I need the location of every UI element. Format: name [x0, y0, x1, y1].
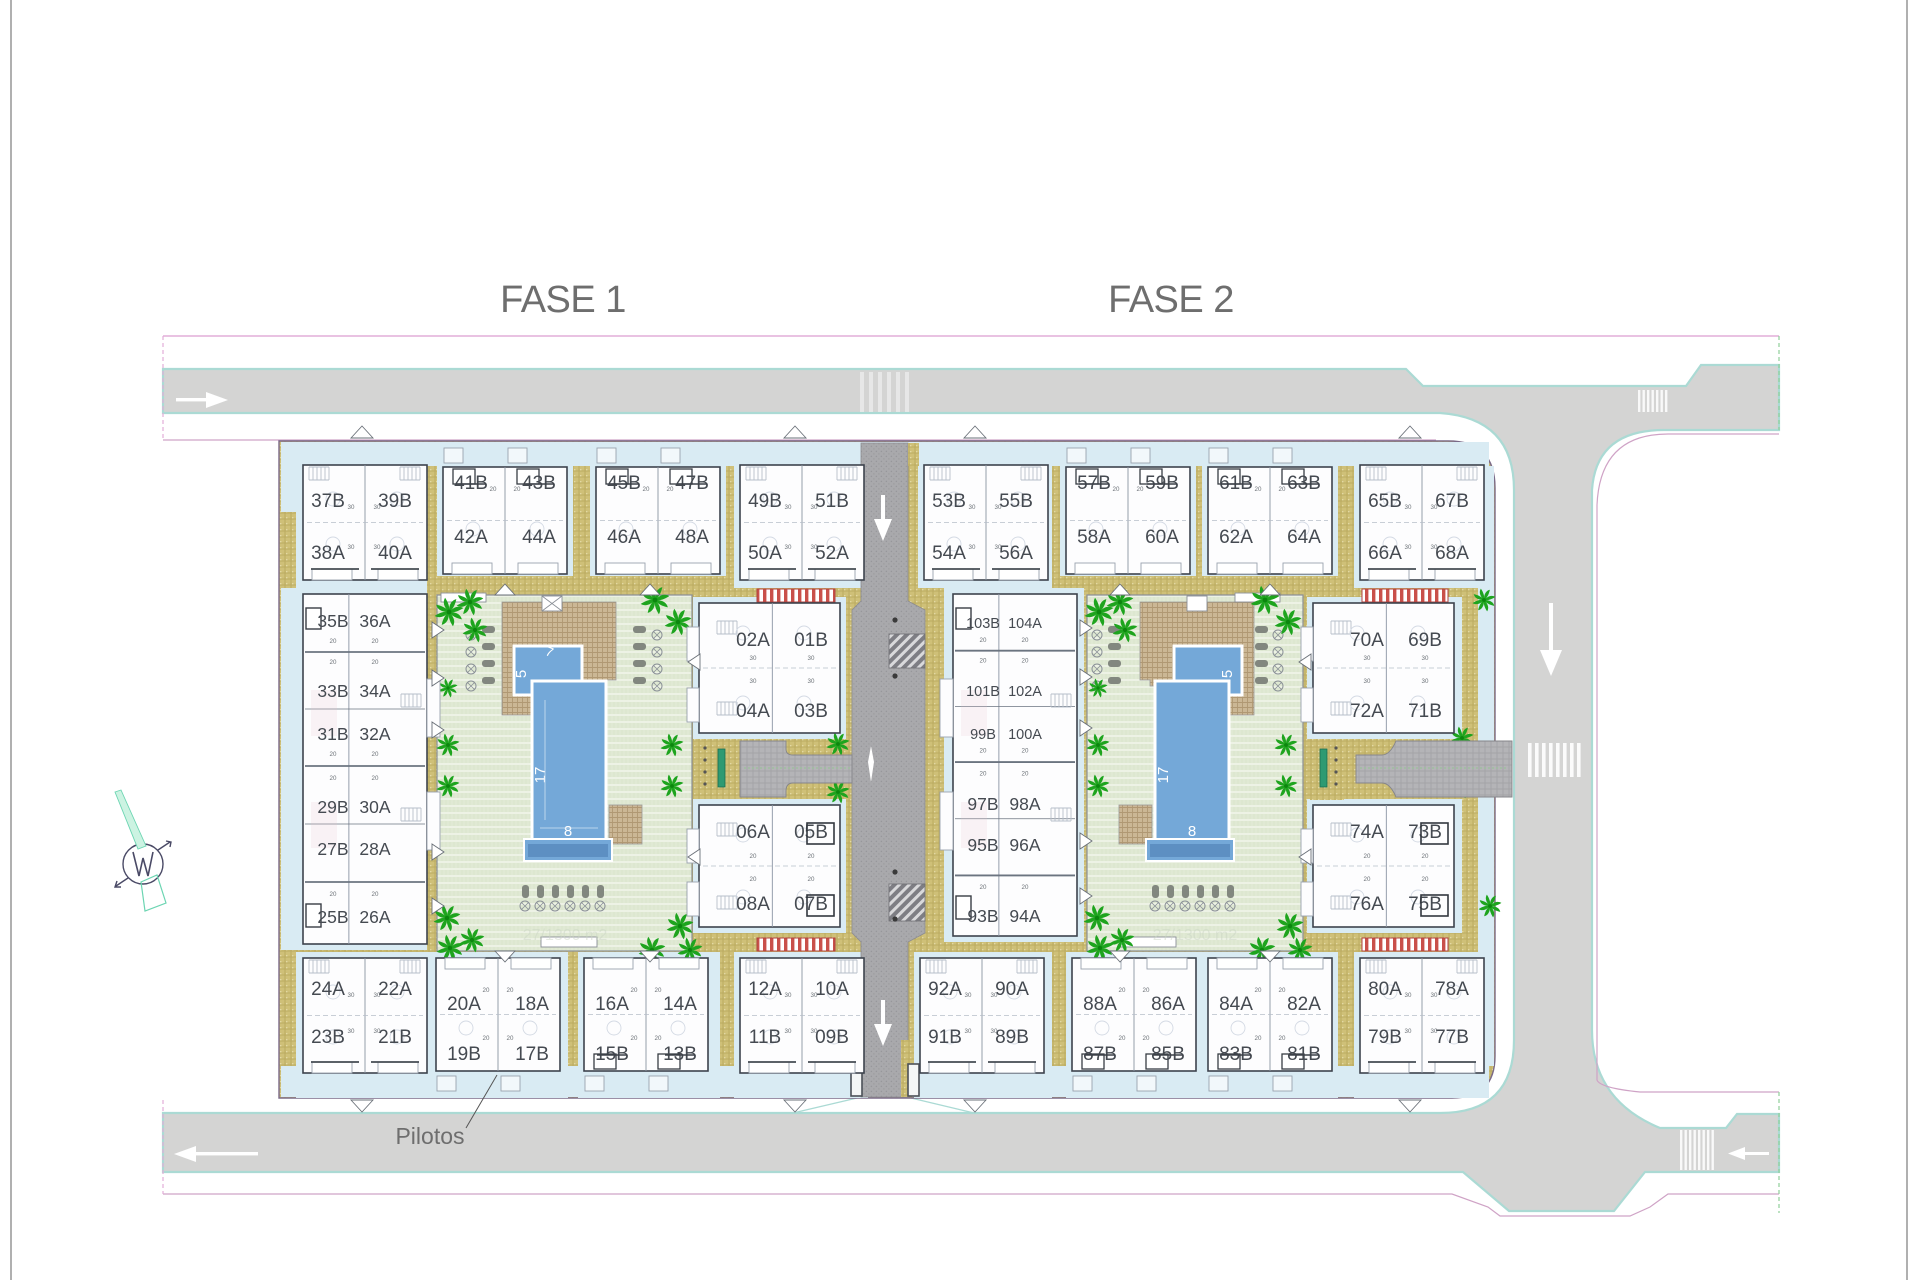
svg-text:103B: 103B	[966, 616, 1000, 632]
svg-text:98A: 98A	[1009, 794, 1040, 814]
svg-text:30: 30	[995, 504, 1002, 511]
svg-text:30: 30	[1405, 1028, 1412, 1035]
svg-text:60A: 60A	[1145, 527, 1179, 548]
svg-text:20: 20	[655, 987, 662, 994]
svg-text:30A: 30A	[359, 797, 390, 817]
svg-text:30: 30	[1431, 544, 1438, 551]
svg-text:66A: 66A	[1368, 543, 1402, 564]
svg-text:20: 20	[1119, 1035, 1126, 1042]
svg-text:72A: 72A	[1350, 701, 1384, 722]
svg-text:77B: 77B	[1435, 1027, 1469, 1048]
svg-text:84A: 84A	[1219, 994, 1253, 1015]
svg-text:30: 30	[808, 655, 815, 662]
svg-text:48A: 48A	[675, 527, 709, 548]
svg-text:86A: 86A	[1151, 994, 1185, 1015]
svg-text:10A: 10A	[815, 979, 849, 1000]
svg-text:20: 20	[1143, 987, 1150, 994]
svg-text:76A: 76A	[1350, 894, 1384, 915]
svg-text:20: 20	[631, 1035, 638, 1042]
svg-text:32A: 32A	[359, 724, 390, 744]
svg-text:20: 20	[980, 747, 987, 754]
svg-text:20: 20	[507, 1035, 514, 1042]
svg-text:20: 20	[514, 486, 521, 493]
svg-text:20: 20	[483, 1035, 490, 1042]
svg-text:20: 20	[507, 987, 514, 994]
svg-text:71B: 71B	[1408, 701, 1442, 722]
svg-text:64A: 64A	[1287, 527, 1321, 548]
svg-text:20: 20	[1022, 884, 1029, 891]
svg-text:20: 20	[1255, 1035, 1262, 1042]
svg-text:30: 30	[991, 992, 998, 999]
svg-text:20: 20	[330, 638, 337, 645]
svg-text:55B: 55B	[999, 491, 1033, 512]
svg-text:20: 20	[330, 775, 337, 782]
svg-text:20: 20	[1022, 657, 1029, 664]
svg-text:73B: 73B	[1408, 822, 1442, 843]
svg-text:30: 30	[965, 992, 972, 999]
svg-text:20: 20	[1422, 853, 1429, 860]
svg-text:20: 20	[980, 637, 987, 644]
svg-text:68A: 68A	[1435, 543, 1469, 564]
svg-text:30: 30	[374, 1028, 381, 1035]
svg-text:30: 30	[785, 1028, 792, 1035]
svg-text:20: 20	[808, 876, 815, 883]
svg-text:20: 20	[980, 657, 987, 664]
svg-text:37B: 37B	[311, 491, 345, 512]
svg-text:20: 20	[750, 853, 757, 860]
svg-text:07B: 07B	[794, 894, 828, 915]
svg-text:96A: 96A	[1009, 835, 1040, 855]
svg-text:30: 30	[969, 544, 976, 551]
svg-text:79B: 79B	[1368, 1027, 1402, 1048]
svg-text:70A: 70A	[1350, 630, 1384, 651]
svg-text:93B: 93B	[967, 906, 998, 926]
svg-text:20: 20	[490, 486, 497, 493]
svg-text:30: 30	[374, 992, 381, 999]
svg-text:20: 20	[1119, 987, 1126, 994]
svg-text:91B: 91B	[928, 1027, 962, 1048]
svg-text:33B: 33B	[317, 681, 348, 701]
svg-text:56A: 56A	[999, 543, 1033, 564]
svg-text:30: 30	[374, 544, 381, 551]
svg-text:51B: 51B	[815, 491, 849, 512]
svg-text:80A: 80A	[1368, 979, 1402, 1000]
svg-text:30: 30	[1431, 1028, 1438, 1035]
svg-text:16A: 16A	[595, 994, 629, 1015]
svg-text:42A: 42A	[454, 527, 488, 548]
svg-text:30: 30	[348, 1028, 355, 1035]
svg-text:30: 30	[750, 678, 757, 685]
svg-text:20: 20	[980, 884, 987, 891]
svg-text:30: 30	[348, 992, 355, 999]
svg-text:FASE 1: FASE 1	[500, 279, 626, 321]
svg-text:12A: 12A	[748, 979, 782, 1000]
svg-text:20: 20	[1255, 486, 1262, 493]
svg-text:20: 20	[631, 987, 638, 994]
svg-text:30: 30	[1405, 544, 1412, 551]
svg-text:30: 30	[811, 1028, 818, 1035]
svg-text:30: 30	[785, 504, 792, 511]
svg-text:30: 30	[991, 1028, 998, 1035]
svg-text:30: 30	[1431, 992, 1438, 999]
svg-text:08A: 08A	[736, 894, 770, 915]
svg-text:30: 30	[969, 504, 976, 511]
svg-text:20: 20	[372, 891, 379, 898]
svg-text:100A: 100A	[1008, 727, 1042, 743]
svg-text:30: 30	[1405, 504, 1412, 511]
svg-text:14A: 14A	[663, 994, 697, 1015]
svg-text:20: 20	[372, 751, 379, 758]
svg-text:17: 17	[532, 767, 549, 784]
svg-text:17B: 17B	[515, 1044, 549, 1065]
svg-text:20: 20	[643, 486, 650, 493]
svg-text:30: 30	[1422, 655, 1429, 662]
svg-text:67B: 67B	[1435, 491, 1469, 512]
svg-text:30: 30	[750, 655, 757, 662]
svg-text:20: 20	[1022, 637, 1029, 644]
svg-text:89B: 89B	[995, 1027, 1029, 1048]
svg-text:20: 20	[330, 751, 337, 758]
svg-text:30: 30	[785, 992, 792, 999]
svg-text:30: 30	[808, 678, 815, 685]
svg-text:30: 30	[785, 544, 792, 551]
svg-text:53B: 53B	[932, 491, 966, 512]
svg-text:20: 20	[1422, 876, 1429, 883]
svg-text:20: 20	[372, 775, 379, 782]
svg-text:38A: 38A	[311, 543, 345, 564]
svg-text:30: 30	[1364, 678, 1371, 685]
svg-text:101B: 101B	[966, 684, 1000, 700]
svg-text:78A: 78A	[1435, 979, 1469, 1000]
svg-text:20: 20	[1279, 1035, 1286, 1042]
svg-text:50A: 50A	[748, 543, 782, 564]
svg-text:74A: 74A	[1350, 822, 1384, 843]
svg-text:95B: 95B	[967, 835, 998, 855]
svg-text:99B: 99B	[970, 727, 996, 743]
svg-text:27/1300 m2: 27/1300 m2	[523, 927, 608, 944]
svg-text:20: 20	[1255, 987, 1262, 994]
svg-text:20A: 20A	[447, 994, 481, 1015]
svg-text:27B: 27B	[317, 839, 348, 859]
svg-text:20: 20	[750, 876, 757, 883]
svg-text:24A: 24A	[311, 979, 345, 1000]
svg-text:21B: 21B	[378, 1027, 412, 1048]
svg-text:30: 30	[374, 504, 381, 511]
svg-text:31B: 31B	[317, 724, 348, 744]
svg-text:22A: 22A	[378, 979, 412, 1000]
svg-text:30: 30	[1364, 655, 1371, 662]
svg-text:92A: 92A	[928, 979, 962, 1000]
svg-text:09B: 09B	[815, 1027, 849, 1048]
svg-text:19B: 19B	[447, 1044, 481, 1065]
svg-text:44A: 44A	[522, 527, 556, 548]
svg-text:18A: 18A	[515, 994, 549, 1015]
svg-text:69B: 69B	[1408, 630, 1442, 651]
svg-text:06A: 06A	[736, 822, 770, 843]
svg-text:40A: 40A	[378, 543, 412, 564]
svg-text:20: 20	[372, 638, 379, 645]
svg-text:20: 20	[1279, 987, 1286, 994]
svg-text:82A: 82A	[1287, 994, 1321, 1015]
svg-text:Pilotos: Pilotos	[395, 1123, 464, 1149]
svg-text:62A: 62A	[1219, 527, 1253, 548]
svg-text:20: 20	[655, 1035, 662, 1042]
svg-text:30: 30	[811, 544, 818, 551]
svg-text:23B: 23B	[311, 1027, 345, 1048]
svg-text:20: 20	[1113, 486, 1120, 493]
svg-text:54A: 54A	[932, 543, 966, 564]
svg-text:17: 17	[1155, 767, 1172, 784]
svg-text:104A: 104A	[1008, 616, 1042, 632]
svg-text:04A: 04A	[736, 701, 770, 722]
svg-text:03B: 03B	[794, 701, 828, 722]
svg-text:102A: 102A	[1008, 684, 1042, 700]
svg-text:5: 5	[1219, 670, 1236, 678]
svg-text:5: 5	[513, 670, 530, 678]
svg-text:29B: 29B	[317, 797, 348, 817]
svg-text:20: 20	[1137, 486, 1144, 493]
svg-text:20: 20	[808, 853, 815, 860]
svg-text:26A: 26A	[359, 907, 390, 927]
svg-text:36A: 36A	[359, 611, 390, 631]
svg-text:30: 30	[348, 544, 355, 551]
svg-text:20: 20	[1364, 853, 1371, 860]
svg-text:97B: 97B	[967, 794, 998, 814]
svg-text:30: 30	[348, 504, 355, 511]
svg-text:90A: 90A	[995, 979, 1029, 1000]
svg-text:30: 30	[1422, 678, 1429, 685]
svg-text:27/1300 m2: 27/1300 m2	[1153, 927, 1238, 944]
svg-text:20: 20	[1022, 747, 1029, 754]
svg-text:34A: 34A	[359, 681, 390, 701]
svg-text:94A: 94A	[1009, 906, 1040, 926]
svg-text:FASE 2: FASE 2	[1108, 279, 1234, 321]
svg-text:30: 30	[811, 992, 818, 999]
svg-text:20: 20	[667, 486, 674, 493]
svg-text:30: 30	[1431, 504, 1438, 511]
svg-text:8: 8	[1188, 823, 1196, 840]
svg-text:20: 20	[1143, 1035, 1150, 1042]
svg-text:20: 20	[330, 659, 337, 666]
svg-text:35B: 35B	[317, 611, 348, 631]
svg-text:28A: 28A	[359, 839, 390, 859]
svg-text:52A: 52A	[815, 543, 849, 564]
svg-text:20: 20	[1364, 876, 1371, 883]
svg-text:20: 20	[372, 659, 379, 666]
svg-text:11B: 11B	[749, 1027, 781, 1048]
svg-text:30: 30	[1405, 992, 1412, 999]
svg-text:25B: 25B	[317, 907, 348, 927]
svg-text:88A: 88A	[1083, 994, 1117, 1015]
svg-text:39B: 39B	[378, 491, 412, 512]
svg-text:20: 20	[483, 987, 490, 994]
svg-text:30: 30	[965, 1028, 972, 1035]
svg-text:20: 20	[1279, 486, 1286, 493]
svg-text:75B: 75B	[1408, 894, 1442, 915]
svg-text:49B: 49B	[748, 491, 782, 512]
svg-text:01B: 01B	[794, 630, 828, 651]
svg-text:65B: 65B	[1368, 491, 1402, 512]
svg-text:46A: 46A	[607, 527, 641, 548]
svg-text:02A: 02A	[736, 630, 770, 651]
svg-text:20: 20	[330, 891, 337, 898]
svg-text:30: 30	[995, 544, 1002, 551]
svg-text:20: 20	[980, 771, 987, 778]
svg-text:05B: 05B	[794, 822, 828, 843]
svg-text:8: 8	[564, 823, 572, 840]
svg-text:20: 20	[1022, 771, 1029, 778]
svg-text:30: 30	[811, 504, 818, 511]
svg-text:58A: 58A	[1077, 527, 1111, 548]
